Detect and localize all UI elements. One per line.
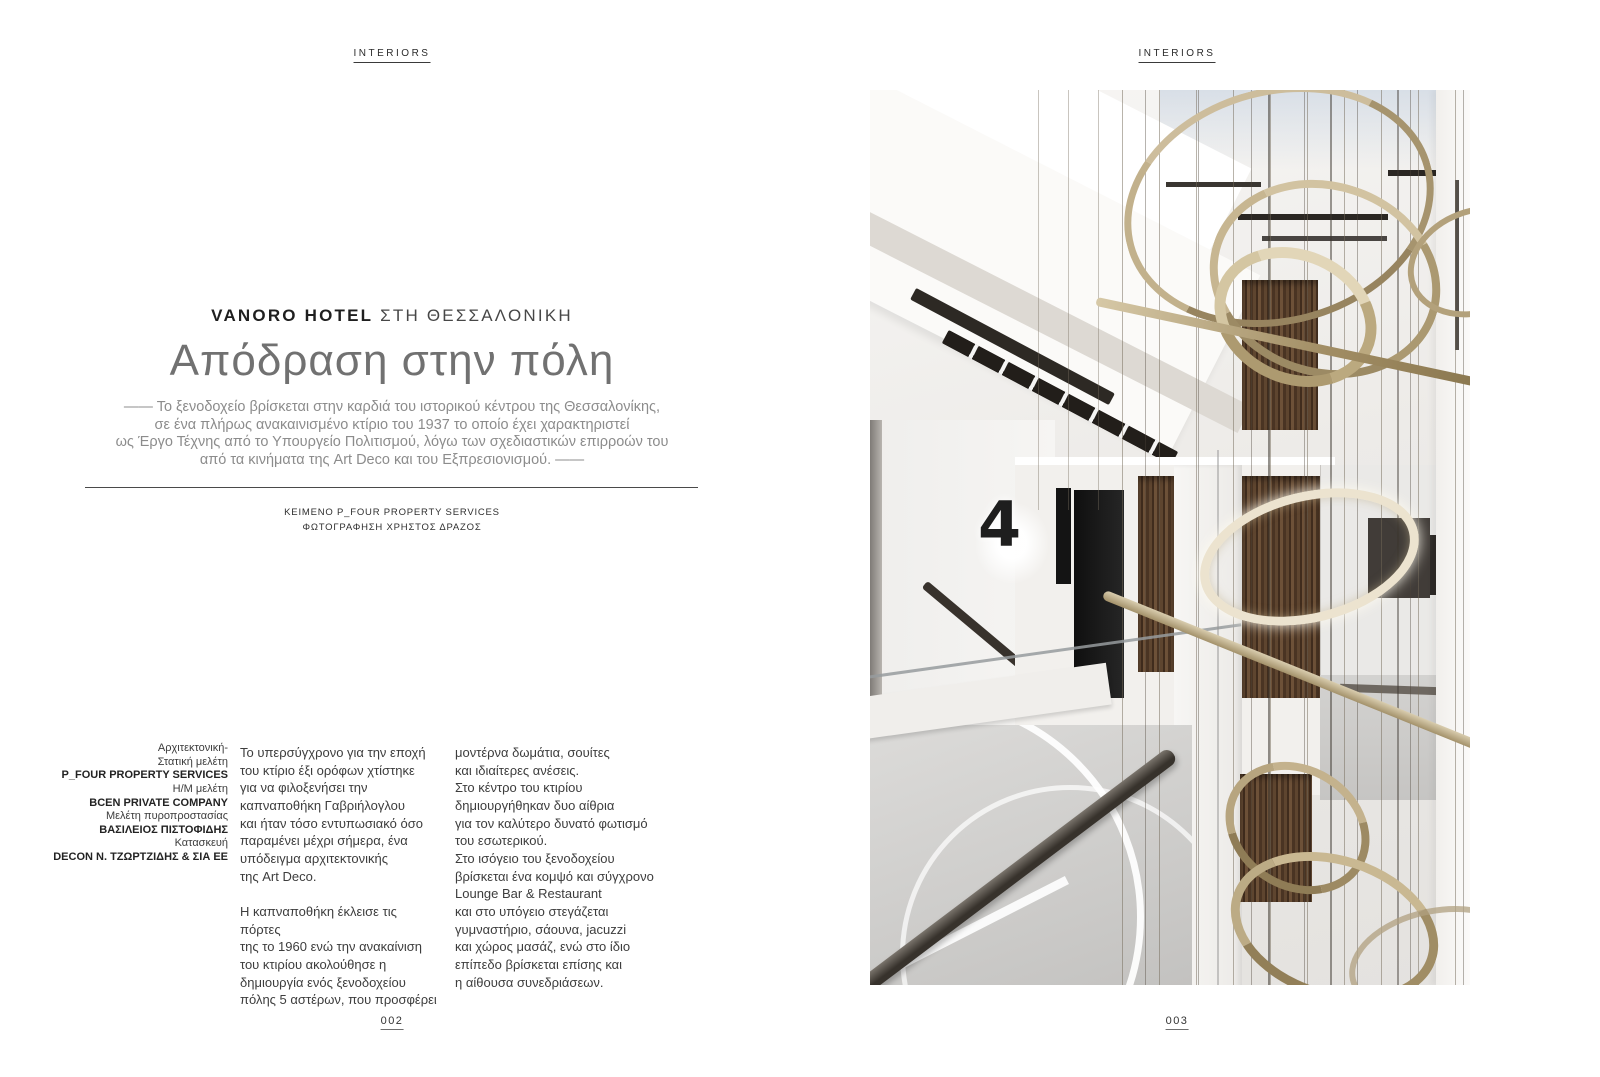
credit-line: Η/Μ μελέτη xyxy=(40,783,228,797)
page-title: Απόδραση στην πόλη xyxy=(170,336,615,386)
byline-text-credit: ΚΕΙΜΕΝΟ P_FOUR PROPERTY SERVICES xyxy=(284,506,500,521)
left-page-header: INTERIORS xyxy=(354,48,431,63)
byline: ΚΕΙΜΕΝΟ P_FOUR PROPERTY SERVICES ΦΩΤΟΓΡΑ… xyxy=(284,506,500,535)
credit-line: DECON Ν. ΤΖΩΡΤΖΙΔΗΣ & ΣΙΑ ΕΕ xyxy=(40,851,228,865)
credit-line: Στατική μελέτη xyxy=(40,756,228,770)
credit-line: P_FOUR PROPERTY SERVICES xyxy=(40,769,228,783)
kicker-location: ΣΤΗ ΘΕΣΣΑΛΟΝΙΚΗ xyxy=(373,306,573,325)
kicker: VANORO HOTEL ΣΤΗ ΘΕΣΣΑΛΟΝΙΚΗ xyxy=(211,306,573,326)
hotel-atrium-photo: 4 xyxy=(870,90,1470,985)
floor-number: 4 xyxy=(978,494,1021,556)
kicker-hotel-name: VANORO HOTEL xyxy=(211,306,373,325)
intro-paragraph: —— Το ξενοδοχείο βρίσκεται στην καρδιά τ… xyxy=(102,399,682,470)
right-page-header: INTERIORS xyxy=(1139,48,1216,63)
credit-line: Αρχιτεκτονική- xyxy=(40,742,228,756)
glass-joint xyxy=(1217,450,1219,985)
credit-line: BCEN PRIVATE COMPANY xyxy=(40,797,228,811)
credit-line: ΒΑΣΙΛΕΙΟΣ ΠΙΣΤΟΦΙΔΗΣ xyxy=(40,824,228,838)
body-column-1: Το υπερσύγχρονο για την εποχή του κτίριο… xyxy=(240,744,438,1009)
divider-rule xyxy=(85,487,698,488)
body-column-2: μοντέρνα δωμάτια, σουίτες και ιδιαίτερες… xyxy=(455,744,660,991)
byline-photo-credit: ΦΩΤΟΓΡΑΦΗΣΗ ΧΡΗΣΤΟΣ ΔΡΑΖΟΣ xyxy=(284,521,500,536)
left-page-number: 002 xyxy=(381,1015,404,1030)
right-page-number: 003 xyxy=(1166,1015,1189,1030)
credit-line: Μελέτη πυροπροστασίας xyxy=(40,810,228,824)
credit-line: Κατασκευή xyxy=(40,837,228,851)
project-credits: Αρχιτεκτονική- Στατική μελέτη P_FOUR PRO… xyxy=(40,742,228,865)
magazine-spread: INTERIORS VANORO HOTEL ΣΤΗ ΘΕΣΣΑΛΟΝΙΚΗ Α… xyxy=(0,0,1600,1077)
